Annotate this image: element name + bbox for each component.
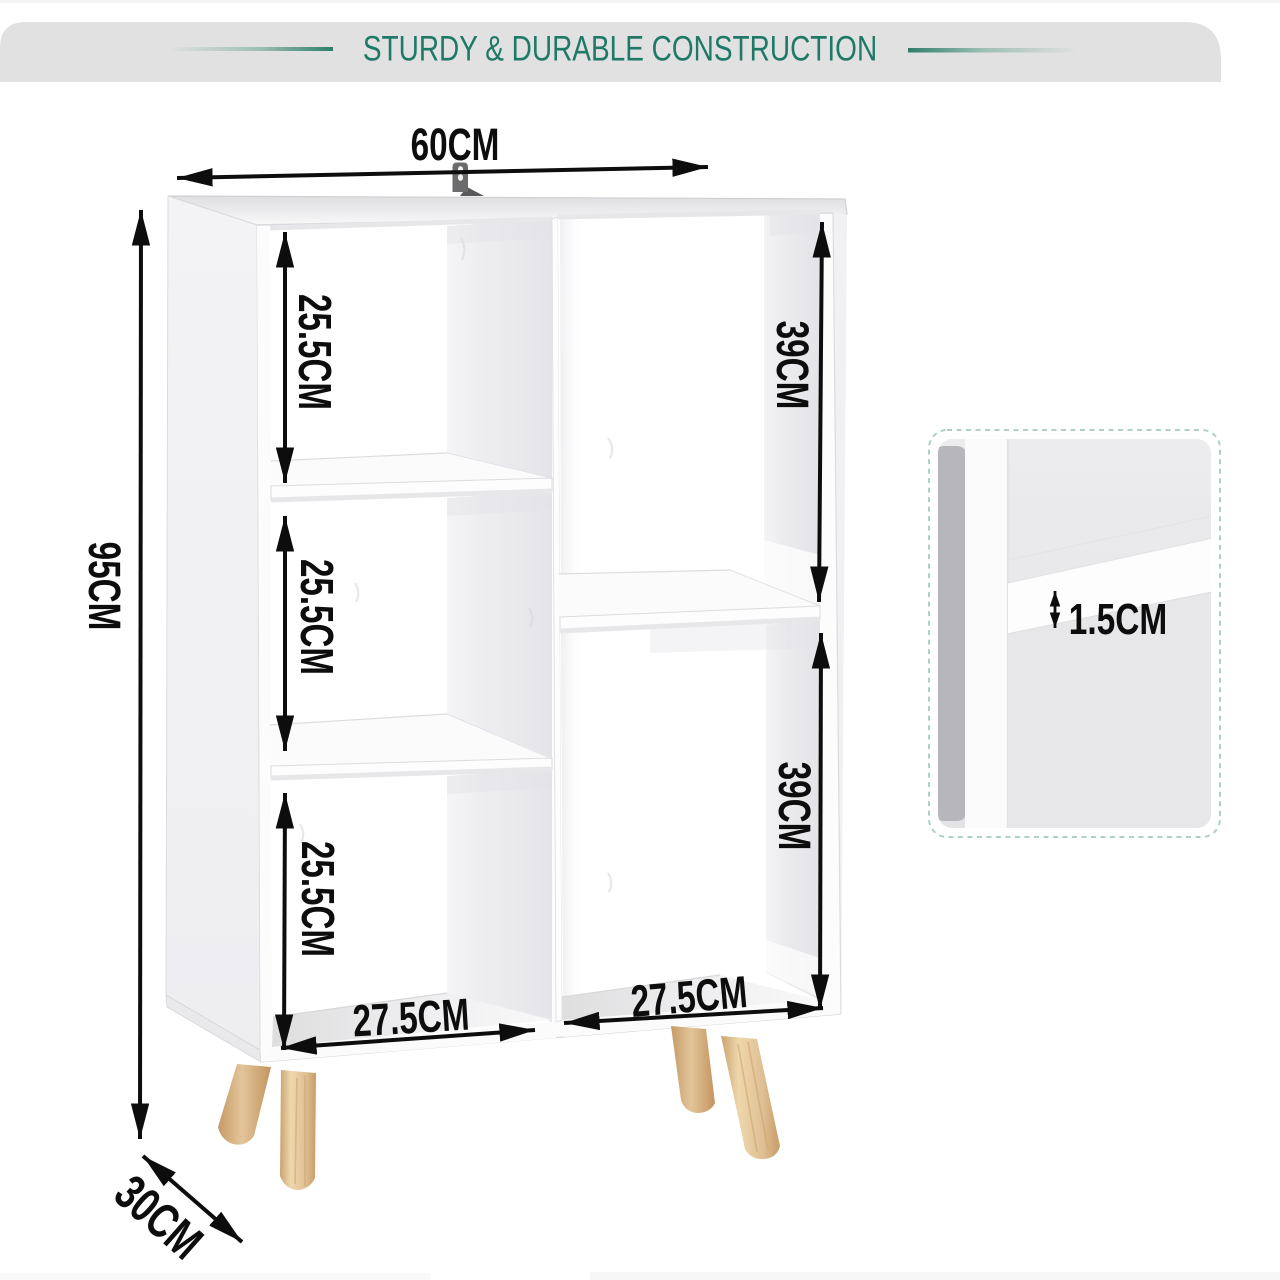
- svg-text:25.5CM: 25.5CM: [289, 294, 339, 410]
- svg-text:27.5CM: 27.5CM: [351, 990, 470, 1047]
- svg-text:STURDY & DURABLE CONSTRUCTION: STURDY & DURABLE CONSTRUCTION: [363, 28, 877, 68]
- svg-text:25.5CM: 25.5CM: [292, 841, 342, 957]
- svg-text:95CM: 95CM: [79, 542, 129, 631]
- svg-text:60CM: 60CM: [411, 120, 500, 170]
- svg-text:1.5CM: 1.5CM: [1069, 596, 1167, 644]
- svg-text:39CM: 39CM: [769, 762, 819, 851]
- svg-text:39CM: 39CM: [767, 321, 817, 410]
- svg-text:25.5CM: 25.5CM: [291, 559, 341, 675]
- svg-text:27.5CM: 27.5CM: [629, 967, 750, 1027]
